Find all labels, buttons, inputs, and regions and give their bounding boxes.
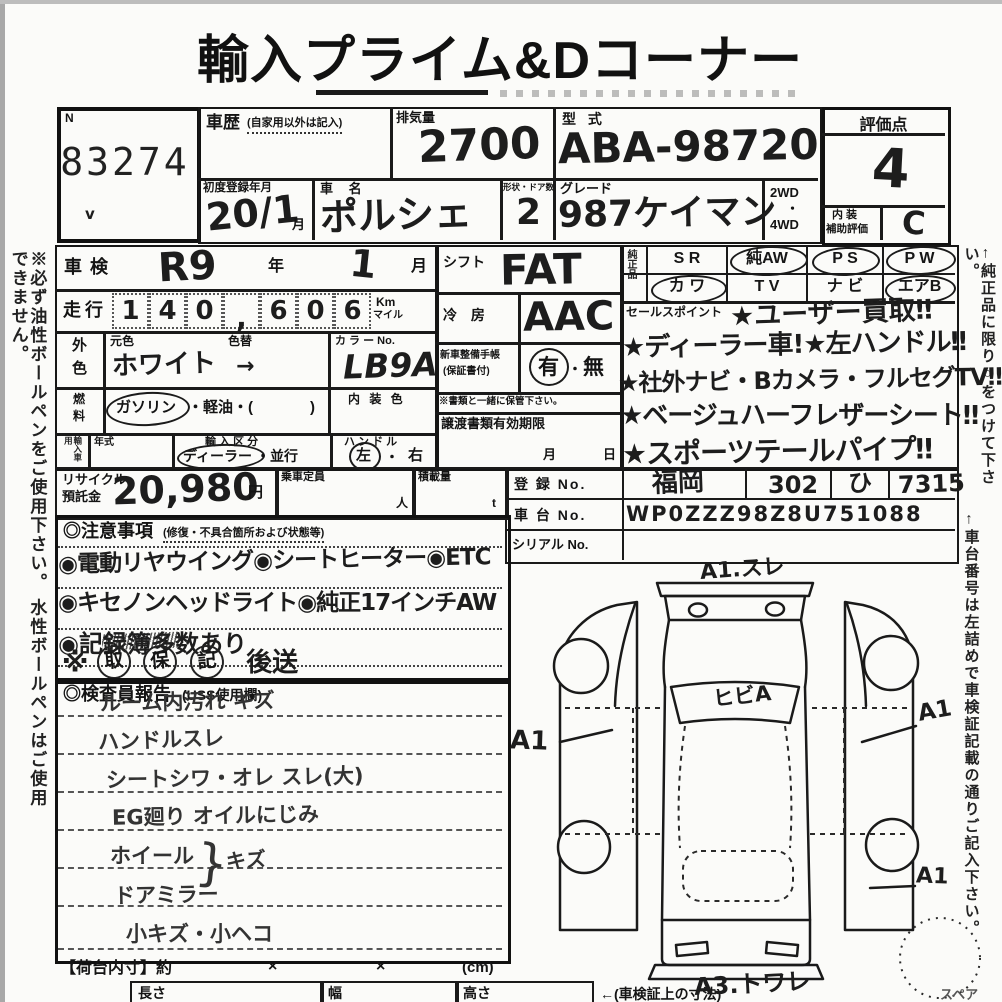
- ac-label: 冷 房: [443, 307, 490, 323]
- transfer-label: 譲渡書類有効期限: [441, 417, 545, 432]
- year-model-label: 年式: [94, 437, 114, 449]
- doors-value: 2: [516, 195, 541, 231]
- manual-no: 無: [583, 356, 604, 380]
- handle-dot: ・: [385, 449, 399, 465]
- grade-value: 987ケイマン: [558, 194, 777, 234]
- width-label: 幅: [328, 985, 342, 1001]
- oem-tv: T V: [728, 273, 806, 301]
- inspector-line-2: ハンドルスレ: [98, 728, 225, 753]
- grid-line: [505, 498, 955, 500]
- serial-no-label: シリアル No.: [512, 538, 588, 553]
- caution-asterisk: ※: [62, 647, 88, 678]
- rule-line: [58, 587, 502, 589]
- model-code-value: ABA-98720: [558, 124, 819, 171]
- load-label: 積載量: [418, 471, 451, 484]
- drive-4wd: 4WD: [770, 218, 799, 233]
- fuel-label-1: 燃: [73, 393, 85, 407]
- recycle-value: 20,980: [111, 467, 259, 510]
- cautions-subtitle: (修復・不具合箇所および状態等): [163, 527, 324, 543]
- grid-line: [435, 392, 620, 395]
- reg-kana: ひ: [848, 471, 872, 495]
- recycle-label-2: 預託金: [62, 490, 101, 505]
- interior-color-label: 内 装 色: [348, 393, 406, 407]
- diagram-note-spare: スペア: [940, 989, 978, 1002]
- lot-number: 83274: [60, 140, 190, 184]
- shaken-label: 車検: [64, 257, 116, 278]
- oem-sr: S R: [648, 245, 726, 273]
- sales-line-3: ★社外ナビ・Bカメラ・フルセグTV‼: [618, 365, 1002, 396]
- fuel-paren-close: ): [310, 399, 315, 416]
- inspector-line-4: EG廻り オイルにじみ: [112, 804, 319, 829]
- grid-line: [435, 412, 620, 415]
- sales-line-2: ★ディーラー車!★左ハンドル‼: [622, 329, 966, 361]
- lot-label: N: [65, 112, 74, 126]
- handle-right: 右: [408, 447, 423, 464]
- grid-line: [328, 331, 331, 433]
- ac-value: AAC: [523, 296, 615, 338]
- grid-line: [518, 342, 521, 392]
- lot-check-mark: v: [85, 207, 95, 222]
- diagram-note-right-2: A1: [916, 865, 949, 888]
- mileage-digit-cell: 6: [334, 293, 371, 329]
- recycle-unit: 円: [248, 484, 263, 501]
- cargo-x1: ×: [268, 958, 277, 976]
- mileage-digit-cell: 1: [112, 293, 149, 329]
- oem-label: 純正品: [625, 249, 636, 299]
- mileage-digit: 6: [269, 296, 287, 326]
- manual-dot: ・: [568, 361, 582, 377]
- interior-label-1: 内 装: [832, 209, 857, 222]
- margin-note-left: ※必ず油性ボールペンをご使用下さい。 水性ボールペンはご使用できません。: [8, 250, 45, 820]
- scan-edge-top: [0, 0, 1002, 4]
- mileage-digit: 6: [343, 296, 361, 326]
- shift-label: シフト: [443, 254, 485, 270]
- mileage-unit-mile: マイル: [373, 310, 403, 322]
- manual-label-2: (保証書付): [443, 366, 490, 378]
- scan-edge-left: [0, 0, 5, 1002]
- inspector-line-3: シートシワ・オレ スレ(大): [106, 766, 364, 791]
- circled-tori: 取: [95, 644, 132, 681]
- rule-line: [58, 948, 502, 950]
- mileage-digit-cell: 0: [186, 293, 223, 329]
- diagram-note-right-1: A1: [916, 697, 953, 726]
- mileage-digit-cell: ,: [223, 293, 260, 329]
- manual-yes: 有: [538, 356, 559, 380]
- first-reg-value: 20/1: [204, 189, 301, 237]
- grid-line: [55, 387, 435, 390]
- color-label-2: 色: [72, 360, 87, 377]
- inspector-kizu: キズ: [225, 849, 266, 872]
- mileage-digit-cell: 6: [260, 293, 297, 329]
- shaken-year-unit: 年: [268, 258, 284, 276]
- orig-color-value: ホワイト: [112, 350, 217, 380]
- page-title: 輸入プライム&Dコーナー: [150, 18, 850, 93]
- recolor-mark: →: [236, 356, 254, 378]
- keep-note: ※書類と一緒に保管下さい。: [439, 397, 563, 408]
- drive-2wd: 2WD: [770, 186, 799, 201]
- mileage-digit: 4: [158, 296, 176, 326]
- circled-ki: 記: [188, 644, 225, 681]
- cautions-title: ◎注意事項: [63, 521, 153, 542]
- auction-sheet: 輸入プライム&Dコーナー ※必ず油性ボールペンをご使用下さい。 水性ボールペンは…: [0, 0, 1002, 1002]
- handle-left: 左: [356, 447, 371, 464]
- shaken-month-unit: 月: [411, 258, 427, 276]
- score-value: 4: [871, 141, 911, 197]
- diagram-note-bottom: A3.トワレ: [693, 969, 810, 999]
- score-label: 評価点: [822, 111, 945, 135]
- sales-points-label: セールスポイント: [626, 306, 722, 320]
- grid-line: [435, 342, 620, 345]
- fuel-label-2: 料: [73, 410, 85, 424]
- circled-ho: 保: [142, 644, 179, 681]
- mileage-digit-cell: 4: [149, 293, 186, 329]
- grid-line: [880, 205, 883, 240]
- inspector-line-1: ルーム内汚れ キズ: [100, 690, 275, 714]
- reg-area: 福岡: [652, 469, 705, 497]
- grid-line: [622, 467, 624, 560]
- import-parallel: ・並行: [256, 448, 298, 464]
- grid-line: [830, 467, 832, 498]
- caution-line-2: ◉キセノンヘッドライト◉純正17インチAW: [58, 592, 496, 615]
- reg-no-label: 登 録 No.: [514, 476, 586, 492]
- car-name-value: ポルシェ: [319, 193, 472, 236]
- mileage-unit-km: Km: [376, 296, 395, 310]
- mileage-digit: 1: [121, 296, 139, 326]
- diagram-note-top: A1.スレ: [699, 556, 785, 584]
- import-dealer: ディーラー: [183, 448, 252, 464]
- inspector-line-7: 小キズ・小ヘコ: [126, 924, 273, 945]
- shaken-era: R9: [157, 245, 218, 288]
- drive-dot: ・: [786, 202, 799, 217]
- history-label: 車歴: [206, 113, 240, 133]
- reg-class: 302: [768, 473, 818, 497]
- caution-line-4: ※ 取 保 記 後送: [62, 645, 298, 679]
- fuel-gasoline: ガソリン: [116, 399, 176, 416]
- recolor-label: 色替: [228, 335, 252, 349]
- rule-line: [58, 715, 502, 717]
- cargo-unit: (cm): [462, 959, 494, 976]
- color-no-value: LB9A: [342, 347, 438, 383]
- inspector-line-6: ドアミラー: [114, 884, 219, 907]
- import-use-label: 輸入車用: [63, 436, 82, 466]
- history-note: (自家用以外は記入): [247, 117, 342, 134]
- cargo-label: 【荷台内寸】約: [60, 960, 172, 978]
- cargo-x2: ×: [376, 958, 385, 976]
- sales-line-5: ★スポーツテールパイプ‼: [622, 435, 933, 468]
- grid-line: [330, 433, 333, 467]
- grid-line: [390, 107, 393, 178]
- load-unit: t: [492, 497, 496, 511]
- grid-line: [88, 433, 91, 467]
- sales-line-4: ★ベージュハーフレザーシート‼: [620, 403, 978, 429]
- title-underline: [316, 90, 488, 95]
- fuel-options: ・軽油・(: [188, 399, 253, 416]
- length-label: 長さ: [138, 985, 166, 1001]
- transfer-month: 月: [543, 448, 556, 463]
- interior-score-value: C: [901, 206, 927, 240]
- chassis-no-label: 車 台 No.: [514, 507, 586, 523]
- manual-label-1: 新車整備手帳: [440, 350, 500, 362]
- chassis-no-value: WP0ZZZ98Z8U751088: [626, 504, 923, 525]
- transfer-day: 日: [603, 448, 616, 463]
- grid-line: [505, 529, 955, 531]
- shift-value: FAT: [500, 248, 582, 291]
- grid-line: [312, 178, 315, 240]
- grid-line: [172, 433, 175, 467]
- passenger-label: 乗車定員: [281, 471, 325, 484]
- reg-number: 7315: [898, 471, 966, 497]
- mileage-digit-cell: 0: [297, 293, 334, 329]
- sales-line-1: ★ユーザー買取‼: [730, 296, 933, 330]
- title-smudge: [500, 90, 800, 97]
- color-label-1: 外: [72, 337, 87, 354]
- caution-kousou: 後送: [246, 648, 298, 678]
- grid-line: [822, 133, 945, 136]
- displacement-value: 2700: [417, 122, 541, 170]
- orig-color-label: 元色: [110, 335, 134, 349]
- shaken-month: 1: [348, 244, 378, 285]
- grid-line: [55, 289, 435, 292]
- mileage-digit: 0: [195, 296, 213, 326]
- grid-line: [745, 467, 747, 498]
- grid-line: [198, 178, 818, 181]
- mileage-label: 走行: [63, 300, 107, 321]
- rule-line: [58, 753, 502, 755]
- car-diagram: [505, 556, 1002, 1002]
- grid-line: [103, 331, 106, 433]
- inspector-line-5: ホイール: [110, 846, 194, 867]
- passenger-unit: 人: [396, 497, 408, 511]
- grid-line: [518, 292, 521, 342]
- interior-label-2: 補助評価: [826, 223, 868, 235]
- mileage-digit: 0: [306, 296, 324, 326]
- mileage-separator: ,: [236, 301, 247, 334]
- diagram-note-left: A1: [510, 727, 549, 754]
- height-label: 高さ: [463, 985, 491, 1001]
- first-reg-unit: 月: [292, 218, 305, 233]
- grid-line: [553, 107, 556, 240]
- grid-line: [888, 467, 890, 498]
